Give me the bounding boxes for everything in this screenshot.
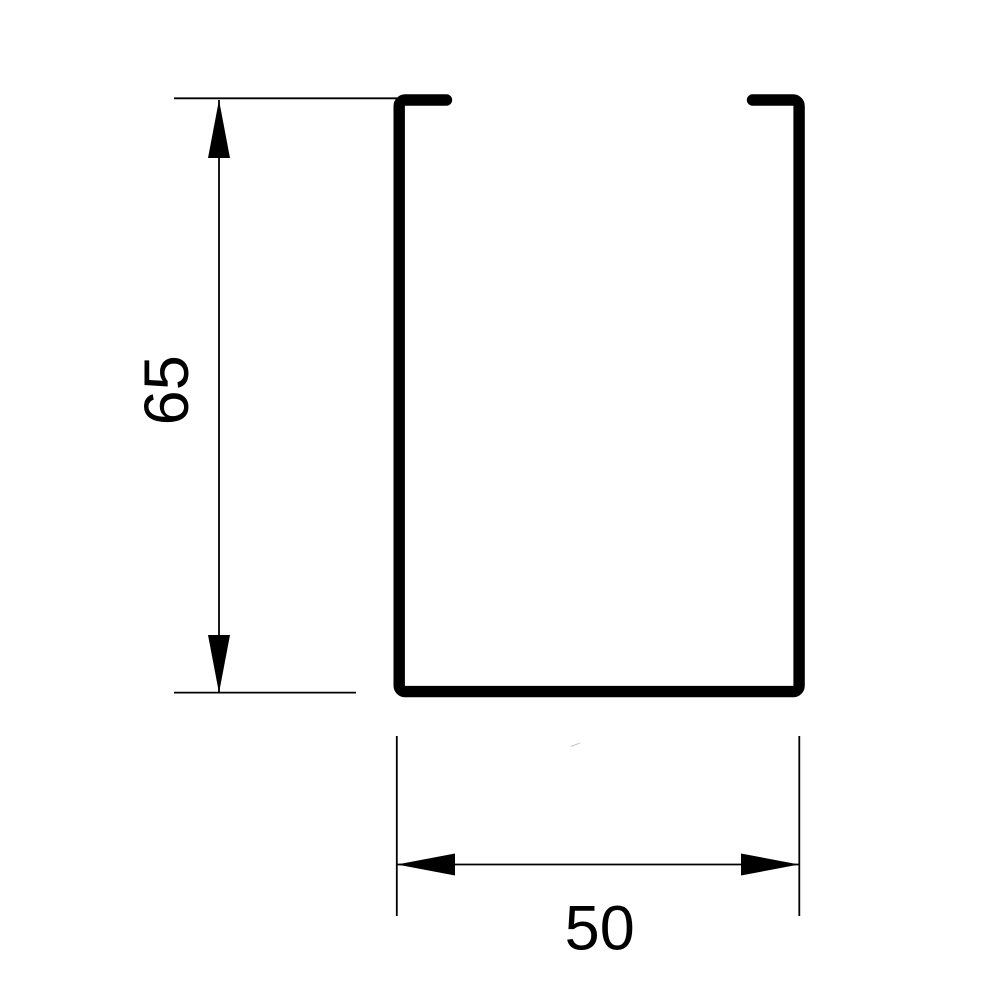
svg-text:65: 65 — [132, 355, 202, 425]
svg-text:50: 50 — [565, 893, 635, 963]
